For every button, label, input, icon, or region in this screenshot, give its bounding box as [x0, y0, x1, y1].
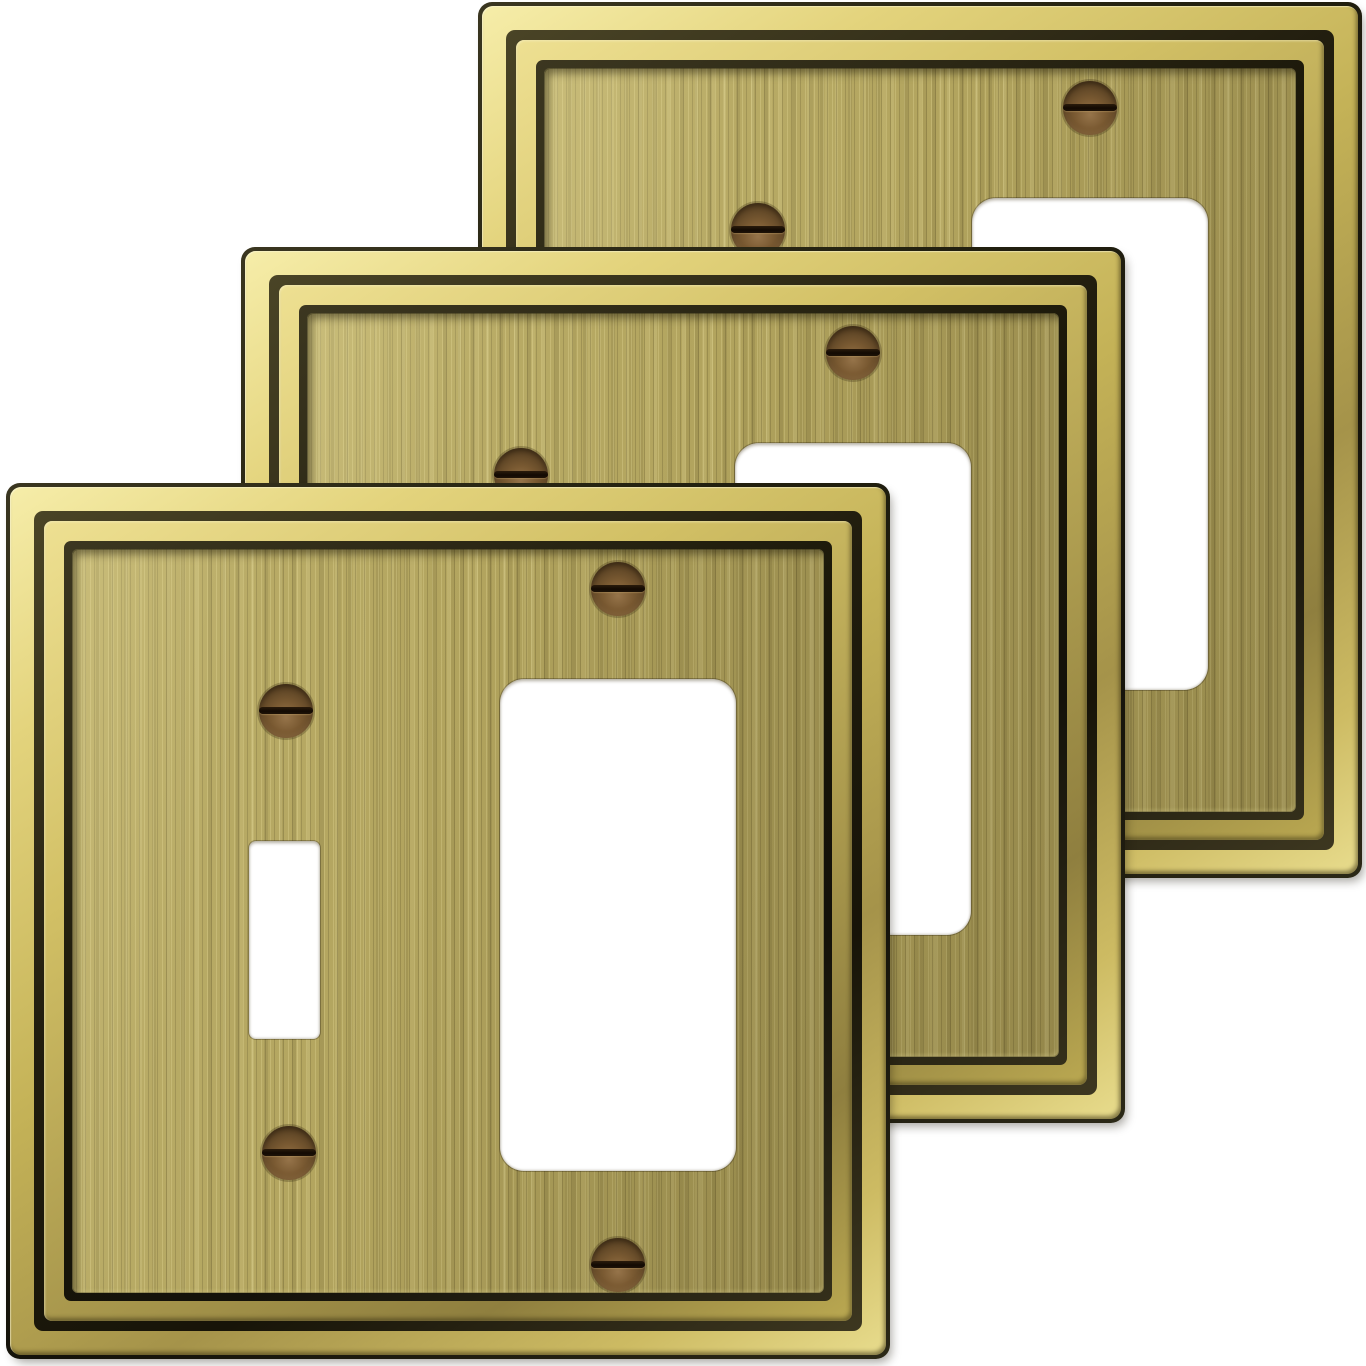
- rocker-switch-cutout: [500, 679, 736, 1171]
- screw-slot-icon: [826, 349, 880, 356]
- screw-rocker-top: [1063, 81, 1117, 135]
- screw-toggle-bottom: [262, 1126, 316, 1180]
- screw-rocker-bottom: [591, 1238, 645, 1292]
- screw-rocker-top: [826, 326, 880, 380]
- screw-slot-icon: [259, 707, 313, 714]
- screw-slot-icon: [591, 1261, 645, 1268]
- screw-toggle-top: [259, 684, 313, 738]
- screw-slot-icon: [262, 1149, 316, 1156]
- screw-slot-icon: [1063, 104, 1117, 111]
- photo-background: [0, 0, 1366, 1366]
- toggle-switch-cutout: [249, 841, 320, 1039]
- screw-slot-icon: [591, 585, 645, 592]
- screw-slot-icon: [494, 471, 548, 478]
- screw-slot-icon: [731, 226, 785, 233]
- screw-rocker-top: [591, 562, 645, 616]
- wall-plate-front: [6, 483, 890, 1359]
